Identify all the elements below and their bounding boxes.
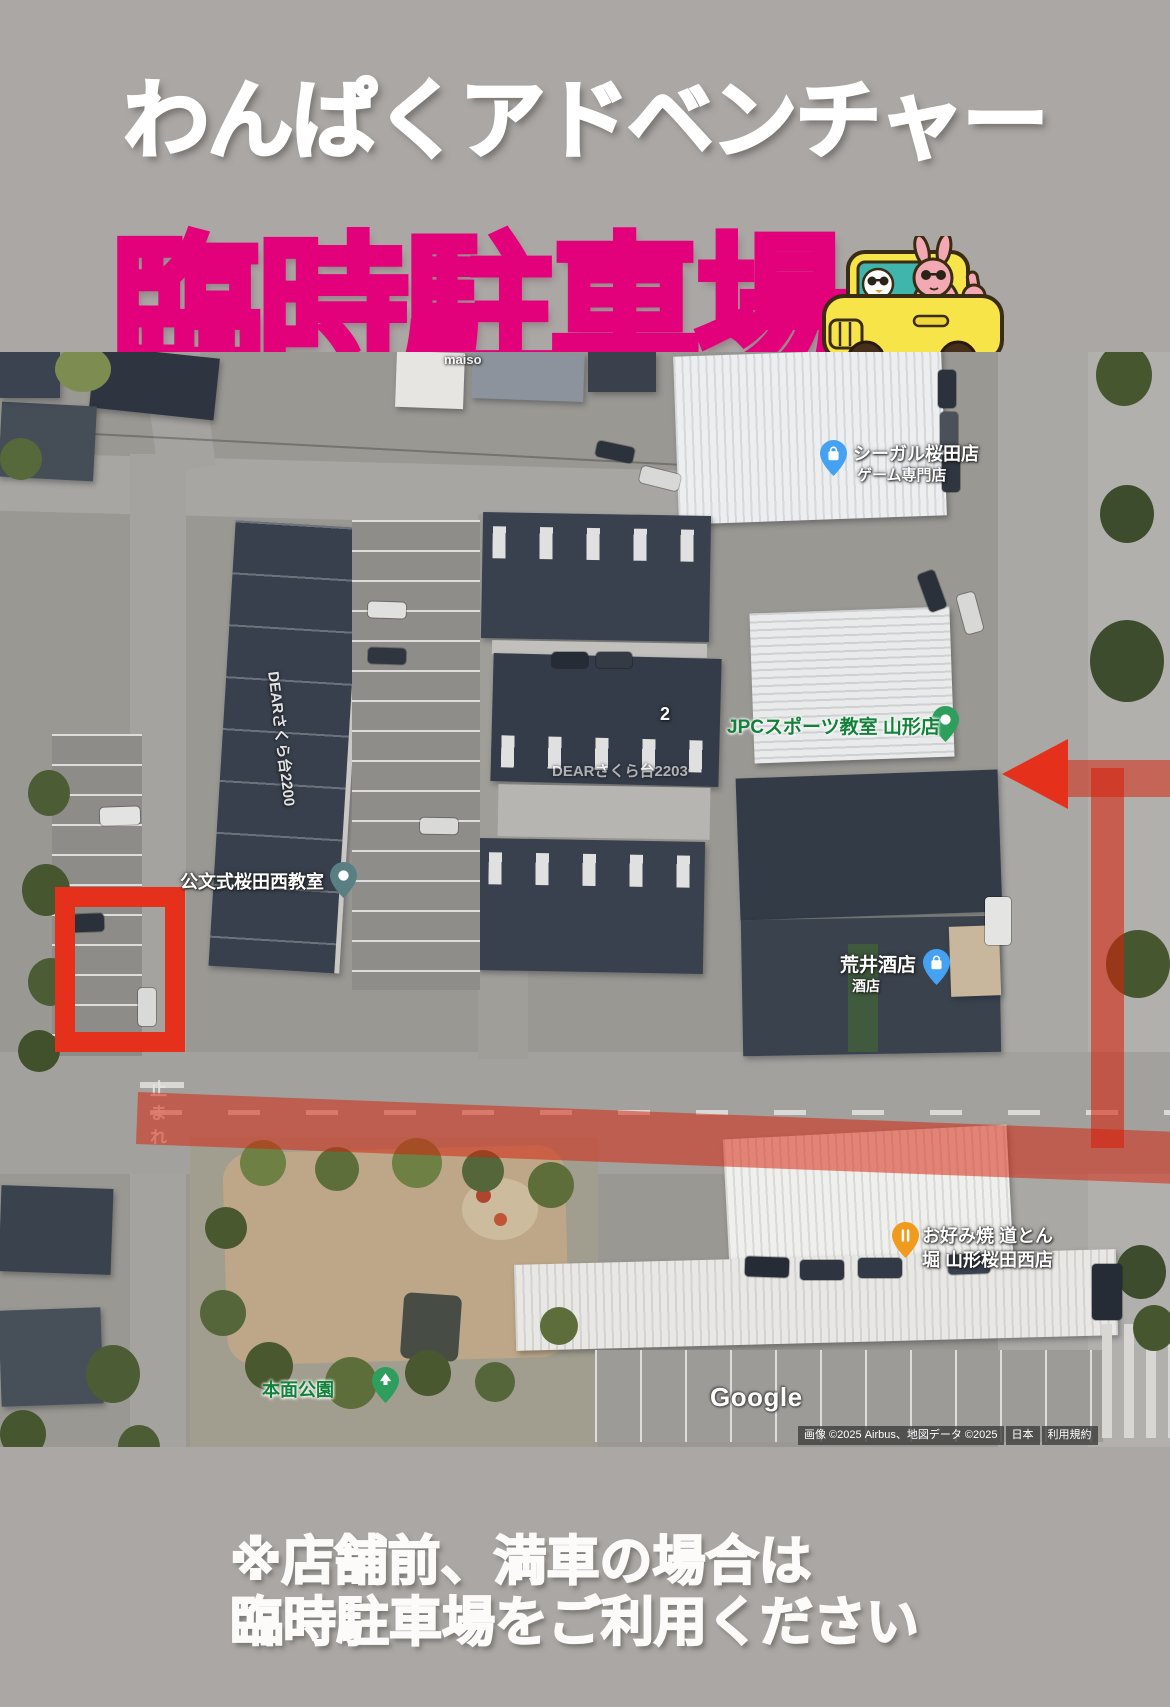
tree [405,1350,451,1396]
parked-car [917,569,948,613]
tree [1116,1245,1166,1299]
tree [18,1030,60,1072]
apartment-block [481,512,711,642]
tree [315,1147,359,1191]
tree [528,1162,574,1208]
tree [1090,620,1164,702]
parked-car [858,1258,902,1278]
building-roof [588,352,656,392]
tree [0,1410,46,1447]
tree [475,1362,515,1402]
building-roof [0,352,60,398]
tree [540,1307,578,1345]
route-band-arrow-tail [1064,760,1170,797]
place-label-seagull[interactable]: シーガル桜田店 [853,440,979,466]
attribution-imagery: 画像 ©2025 Airbus、地図データ ©2025 [798,1426,1004,1445]
route-band-vertical [1091,768,1124,1148]
arai-building [736,769,1003,920]
tree [1100,485,1154,543]
footer-note-line2: 臨時駐車場をご利用ください [230,1580,919,1656]
parked-car [552,652,588,668]
place-label-arai-sub[interactable]: 酒店 [852,976,880,996]
seagull-store-building [673,352,947,525]
place-label-okonomiyaki[interactable]: お好み焼 道とん [922,1222,1053,1248]
map-attribution: 画像 ©2025 Airbus、地図データ ©2025 日本 利用規約 [798,1426,1098,1445]
satellite-map[interactable]: 止まれ [0,352,1170,1447]
parked-car [420,818,458,835]
place-label-okonomiyaki-sub[interactable]: 堀 山形桜田西店 [922,1246,1053,1272]
playground-equipment [494,1213,507,1226]
parked-car [1092,1264,1122,1320]
park-pin-icon[interactable] [372,1367,399,1403]
tree [28,770,70,816]
building-roof [471,352,585,402]
roof-dormers [488,852,695,888]
tree [86,1345,140,1403]
school-pin-icon[interactable] [330,862,357,898]
parked-truck [985,897,1011,945]
house-roof [0,1185,113,1275]
courtyard [498,784,711,840]
route-arrow-icon [1002,739,1068,809]
shopping-pin-icon[interactable] [923,949,950,985]
terms-link[interactable]: 利用規約 [1042,1426,1098,1445]
tree [0,438,42,480]
place-label-kumon[interactable]: 公文式桜田西教室 [180,868,324,894]
tree [205,1207,247,1249]
place-label-arai[interactable]: 荒井酒店 [840,950,916,977]
roof-dormers [492,526,701,562]
parked-car [368,601,407,618]
parked-car [956,591,984,634]
building-label-dear2: DEARさくら台2203 [552,760,688,781]
parked-car [100,806,141,825]
place-label-seagull-sub[interactable]: ゲーム専門店 [857,464,947,485]
parking-lot [352,520,480,990]
partial-label-top: maiso [444,352,482,367]
tree [1133,1305,1170,1351]
lot-number-label: 2 [660,704,670,725]
parked-car [596,652,632,668]
google-logo[interactable]: Google [710,1382,803,1413]
shopping-pin-icon[interactable] [820,440,847,476]
parked-car [745,1256,790,1278]
apartment-block [477,838,705,974]
parking-highlight-square [55,887,185,1052]
restaurant-pin-icon[interactable] [892,1222,919,1258]
poster-title: わんぱくアドベンチャー [0,50,1170,175]
parking-flyer: わんぱくアドベンチャー 臨時駐車場 [0,0,1170,1707]
place-label-park[interactable]: 本面公園 [262,1376,334,1402]
parked-car [938,370,956,408]
house-roof [0,1307,104,1407]
parked-car [800,1260,844,1280]
jpc-building [749,607,954,764]
parked-car [368,647,407,664]
place-label-jpc[interactable]: JPCスポーツ教室 山形店 [727,712,940,739]
tree [200,1290,246,1336]
attribution-region: 日本 [1006,1426,1040,1445]
